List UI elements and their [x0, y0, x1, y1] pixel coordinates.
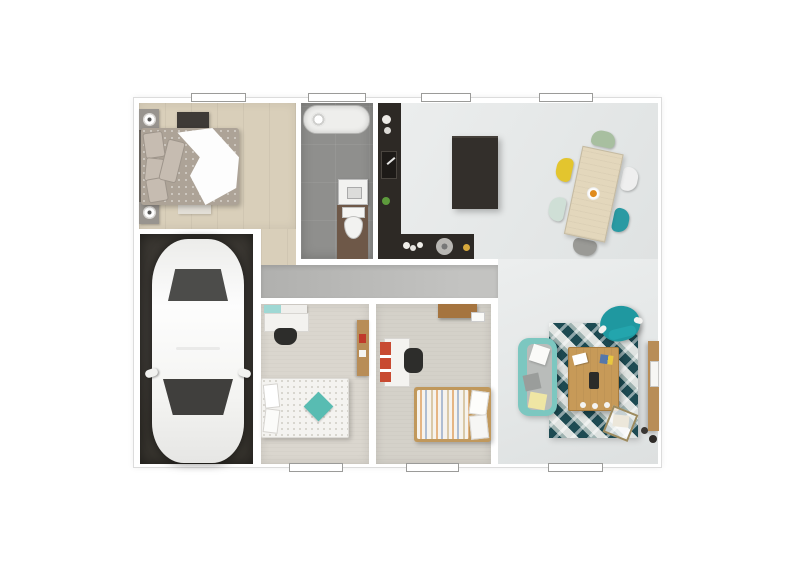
window-bedroom-3	[406, 463, 459, 472]
dresser	[177, 112, 209, 129]
striped-duvet	[417, 390, 469, 439]
toilet	[342, 207, 363, 238]
bedroom-3-floor	[376, 304, 491, 464]
dining-set	[504, 104, 682, 282]
kitchen-counter	[378, 234, 474, 259]
wardrobe-item	[359, 334, 366, 343]
sofa-pillow-yellow	[528, 392, 548, 411]
window-bathroom	[308, 93, 366, 102]
car	[152, 239, 244, 463]
car-rear-window	[168, 269, 228, 301]
toilet-bowl	[344, 216, 363, 239]
pillow	[469, 414, 489, 440]
dining-chair-mint	[547, 195, 568, 222]
desk-chair	[404, 348, 423, 373]
wall-shelf	[438, 304, 477, 318]
tub-faucet-icon	[311, 112, 326, 127]
tablet	[589, 372, 599, 389]
bathtub	[303, 105, 370, 134]
kitchen-island	[452, 136, 498, 209]
teal-pillow	[304, 392, 334, 422]
dish	[403, 242, 410, 249]
bedroom-1-floor	[139, 103, 296, 229]
window-living-room	[548, 463, 603, 472]
single-bed	[261, 378, 349, 438]
window-bedroom-1	[191, 93, 246, 102]
dining-chair-teal	[611, 207, 632, 234]
vanity-cabinet	[337, 205, 368, 259]
floor-plan-render	[0, 0, 800, 568]
bedroom-2-floor	[261, 304, 369, 464]
house-plan	[133, 97, 662, 468]
plate	[382, 115, 391, 124]
washbasin	[338, 179, 368, 205]
tv	[650, 361, 659, 387]
plate	[384, 127, 391, 134]
table-decor	[580, 402, 586, 408]
notebook	[572, 352, 588, 365]
nightstand	[139, 202, 159, 224]
wardrobe	[357, 320, 369, 376]
hallway-floor	[261, 265, 498, 298]
table-decor	[604, 402, 610, 408]
kitchen-item	[463, 244, 470, 251]
pillow	[468, 390, 489, 416]
living-room-floor	[498, 259, 658, 464]
window-bedroom-2	[289, 463, 343, 472]
sofa	[518, 338, 557, 416]
basin-bowl	[347, 187, 362, 199]
armchair-leg	[633, 316, 643, 324]
lamp-icon	[143, 113, 156, 126]
dining-chair-yellow	[554, 156, 575, 183]
lamp-icon	[143, 206, 156, 219]
shelf-item	[471, 312, 485, 322]
floor-plant	[641, 427, 648, 434]
window-dining	[539, 93, 593, 102]
pillow	[142, 131, 165, 160]
car-windshield	[163, 379, 233, 415]
pillow	[263, 383, 280, 408]
window-kitchen	[421, 93, 471, 102]
desk-chair	[274, 328, 297, 345]
floor-plant	[649, 435, 657, 443]
book	[599, 354, 613, 365]
bedroom-1-doorway	[261, 229, 296, 265]
single-bed	[414, 387, 491, 442]
coffee-table	[568, 347, 619, 411]
dining-chair-green	[590, 129, 617, 150]
nightstand	[139, 109, 159, 130]
plant-icon	[382, 197, 390, 205]
bathroom-floor	[301, 103, 373, 259]
table-decor	[592, 403, 598, 409]
garage-floor	[140, 234, 253, 464]
dish	[410, 245, 416, 251]
pan	[436, 238, 453, 255]
dining-chair-white	[619, 166, 640, 193]
pillow	[263, 408, 281, 434]
dish	[417, 242, 423, 248]
double-bed	[141, 128, 239, 205]
tv-sideboard	[648, 341, 659, 431]
car-roof	[176, 347, 220, 350]
wardrobe-item	[359, 350, 366, 357]
sofa-pillow-gray	[523, 373, 542, 392]
kitchen-sink	[381, 151, 397, 179]
faucet-icon	[387, 157, 396, 165]
kitchen-dining-floor	[378, 103, 658, 259]
red-shelf-unit	[380, 342, 391, 382]
